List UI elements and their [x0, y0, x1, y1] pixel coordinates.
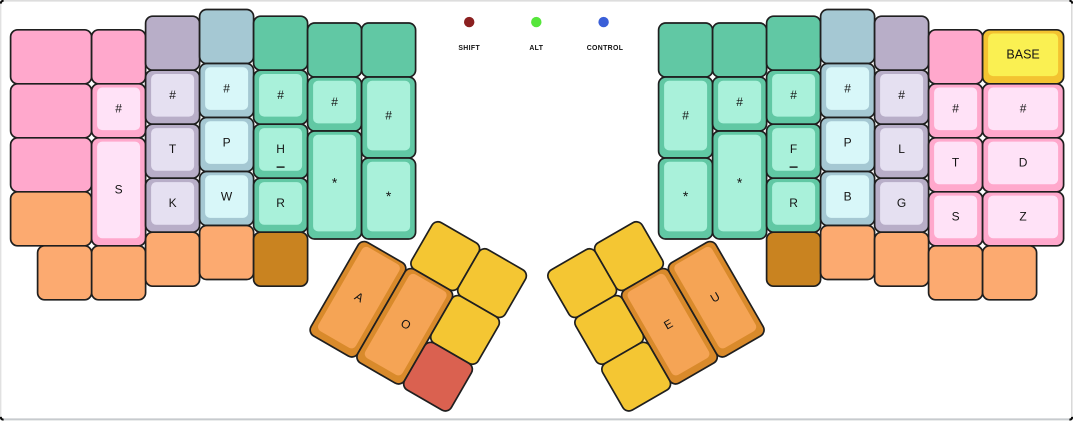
- svg-text:#: #: [223, 81, 230, 95]
- svg-text:T: T: [169, 142, 177, 156]
- svg-text:D: D: [1019, 156, 1028, 170]
- svg-text:SHIFT: SHIFT: [458, 45, 480, 52]
- svg-text:*: *: [737, 175, 743, 191]
- svg-text:BASE: BASE: [1006, 48, 1039, 62]
- svg-text:#: #: [952, 102, 959, 116]
- svg-text:#: #: [790, 88, 797, 102]
- svg-text:R: R: [789, 196, 798, 210]
- svg-text:T: T: [952, 156, 960, 170]
- svg-text:P: P: [844, 135, 852, 149]
- svg-text:L: L: [898, 142, 905, 156]
- svg-text:B: B: [844, 189, 852, 203]
- svg-text:K: K: [169, 196, 177, 210]
- svg-text:*: *: [386, 188, 392, 204]
- svg-text:#: #: [898, 88, 905, 102]
- svg-text:#: #: [736, 95, 743, 109]
- svg-text:#: #: [115, 102, 122, 116]
- svg-text:#: #: [1020, 102, 1027, 116]
- svg-text:CONTROL: CONTROL: [587, 45, 624, 52]
- svg-text:S: S: [952, 210, 960, 224]
- svg-text:R: R: [276, 196, 285, 210]
- svg-text:Z: Z: [1019, 210, 1026, 224]
- svg-text:#: #: [331, 95, 338, 109]
- svg-text:#: #: [844, 81, 851, 95]
- svg-text:#: #: [682, 108, 689, 122]
- svg-text:S: S: [115, 183, 123, 197]
- svg-text:*: *: [332, 175, 338, 191]
- svg-text:*: *: [683, 188, 689, 204]
- svg-text:W: W: [221, 189, 233, 203]
- svg-text:P: P: [223, 135, 231, 149]
- svg-text:#: #: [169, 88, 176, 102]
- svg-text:H: H: [276, 142, 285, 156]
- svg-text:#: #: [277, 88, 284, 102]
- svg-text:G: G: [897, 196, 906, 210]
- svg-text:ALT: ALT: [529, 45, 543, 52]
- svg-text:#: #: [385, 108, 392, 122]
- svg-text:F: F: [790, 142, 797, 156]
